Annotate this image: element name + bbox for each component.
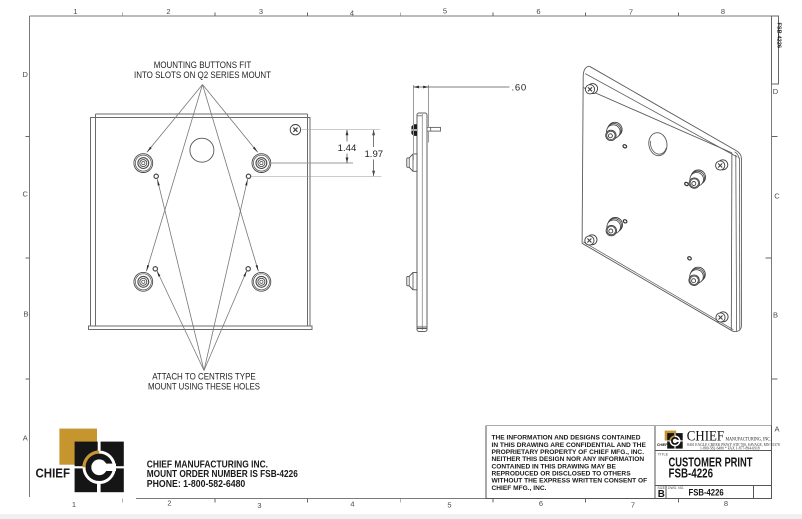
svg-text:C: C [22, 190, 28, 199]
svg-text:5: 5 [443, 7, 447, 16]
svg-text:7: 7 [629, 8, 633, 17]
svg-text:2: 2 [167, 499, 171, 508]
svg-text:CHIEF: CHIEF [657, 443, 668, 447]
svg-text:B: B [23, 310, 28, 319]
svg-text:6: 6 [536, 7, 540, 16]
svg-text:NEITHER THIS DESIGN NOR ANY IN: NEITHER THIS DESIGN NOR ANY INFORMATION [492, 456, 645, 463]
svg-text:.60: .60 [512, 82, 527, 93]
svg-text:DWG. NO.: DWG. NO. [668, 486, 684, 490]
svg-text:7: 7 [631, 501, 635, 510]
svg-text:INTO SLOTS ON Q2 SERIES MOUNT: INTO SLOTS ON Q2 SERIES MOUNT [134, 69, 271, 80]
svg-text:B: B [773, 311, 778, 320]
svg-text:2: 2 [166, 7, 170, 16]
svg-text:TITLE: TITLE [658, 452, 669, 456]
svg-text:1: 1 [73, 7, 77, 16]
svg-text:D: D [773, 87, 779, 96]
svg-text:PHONE: 1-800-582-6480: PHONE: 1-800-582-6480 [147, 479, 246, 490]
svg-text:IN THIS DRAWING ARE CONFIDENTI: IN THIS DRAWING ARE CONFIDENTIAL AND THE [492, 442, 647, 449]
svg-text:1.44: 1.44 [338, 143, 357, 154]
svg-text:FSB-4226: FSB-4226 [669, 465, 714, 480]
svg-text:5: 5 [447, 501, 451, 510]
svg-text:CHIEF MFG., INC.: CHIEF MFG., INC. [492, 485, 547, 492]
svg-text:3: 3 [259, 7, 263, 16]
svg-text:C: C [774, 192, 780, 201]
svg-text:A: A [774, 425, 779, 434]
svg-text:FSB-4226: FSB-4226 [689, 488, 724, 499]
svg-text:WITHOUT THE EXPRESS WRITTEN CO: WITHOUT THE EXPRESS WRITTEN CONSENT OF [492, 478, 648, 485]
svg-text:PROPRIETARY PROPERTY OF CHIEF: PROPRIETARY PROPERTY OF CHIEF MFG., INC. [492, 449, 645, 456]
svg-text:6: 6 [539, 499, 543, 508]
svg-text:THE INFORMATION AND DESIGNS CO: THE INFORMATION AND DESIGNS CONTAINED [492, 435, 641, 442]
svg-text:8: 8 [724, 499, 728, 508]
svg-text:8: 8 [721, 7, 725, 16]
svg-text:REPRODUCED OR DISCLOSED TO OTH: REPRODUCED OR DISCLOSED TO OTHERS [492, 471, 632, 478]
svg-text:CHIEF: CHIEF [36, 467, 71, 481]
svg-text:MOUNT USING THESE HOLES: MOUNT USING THESE HOLES [148, 380, 260, 391]
svg-text:B: B [658, 489, 665, 500]
svg-text:MANUFACTURING, INC.: MANUFACTURING, INC. [726, 438, 772, 443]
svg-text:1: 1 [72, 500, 76, 509]
svg-text:A: A [23, 434, 28, 443]
svg-text:3: 3 [257, 501, 261, 510]
svg-text:4: 4 [350, 500, 354, 509]
svg-text:1.97: 1.97 [364, 149, 383, 160]
svg-text:1-800-582-6480 * FAX 1-877-894: 1-800-582-6480 * FAX 1-877-894-6918 [700, 446, 760, 450]
svg-text:FSB-4226: FSB-4226 [776, 23, 782, 49]
svg-text:4: 4 [350, 9, 354, 18]
svg-text:D: D [22, 70, 28, 79]
svg-text:CONTAINED IN THIS DRAWING MAY: CONTAINED IN THIS DRAWING MAY BE [492, 463, 617, 470]
